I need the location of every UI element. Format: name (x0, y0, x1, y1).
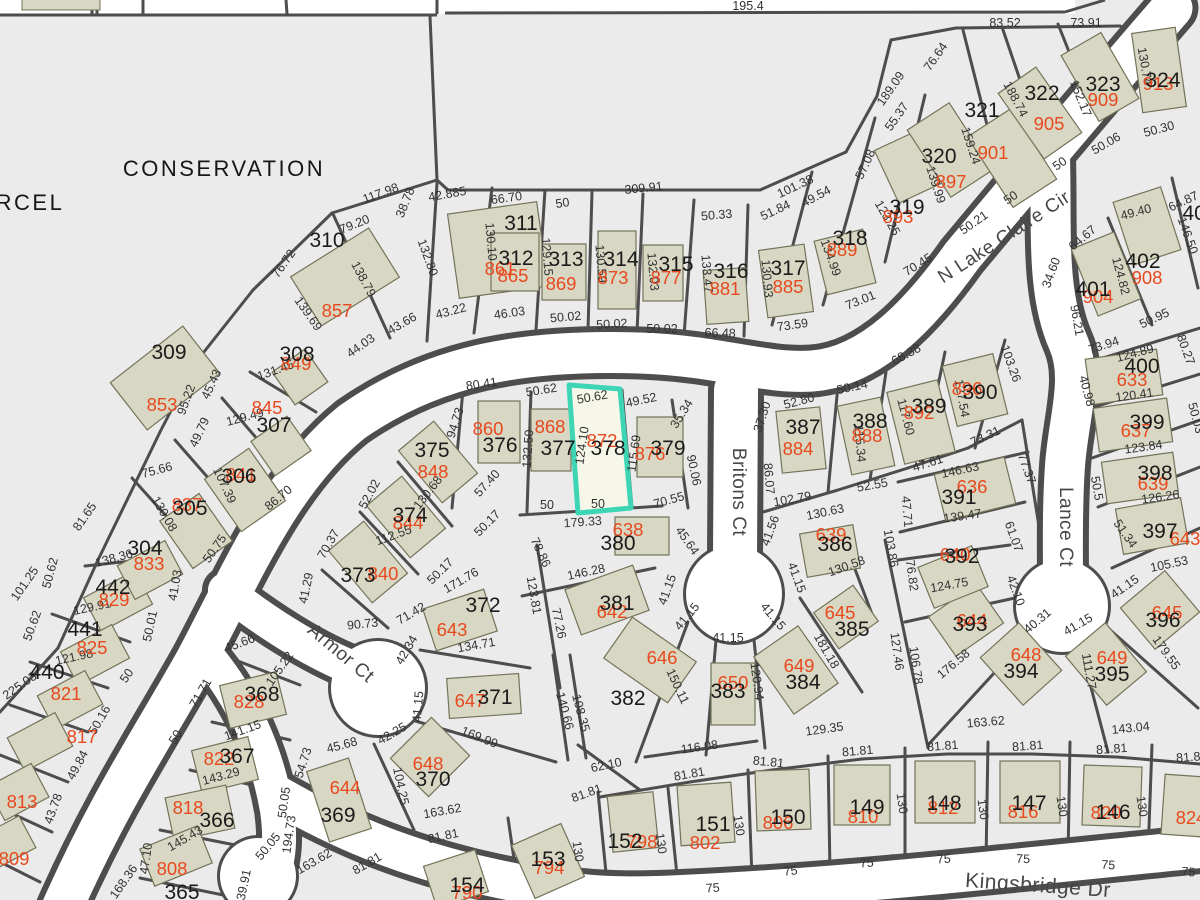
building-footprint (1161, 774, 1200, 838)
parcel-lot-number: 365 (164, 881, 199, 900)
parcel-lot-number: 316 (713, 260, 748, 283)
parcel-lot-number: 400 (1124, 355, 1159, 378)
parcel-map-viewport[interactable]: 195.4117.9879.2076.72138.79139.6938.7842… (0, 0, 1200, 900)
parcel-lot-number: 388 (852, 410, 887, 433)
parcel-lot-number: 154 (449, 874, 484, 897)
parcel-lot-number: 152 (607, 830, 642, 853)
parcel-lot-number: 385 (834, 618, 869, 641)
house-number: 857 (322, 300, 353, 321)
dimension-label: 41.15 (712, 631, 743, 645)
parcel-lot-number: 321 (964, 99, 999, 122)
dimension-label: 130 (731, 814, 748, 837)
parcel-lot-number: 399 (1129, 411, 1164, 434)
parcel-lot-number: 310 (309, 229, 344, 252)
dimension-label: 81.81 (1096, 741, 1128, 757)
dimension-label: 66.48 (704, 325, 736, 340)
parcel-line (286, 0, 287, 14)
parcel-lot-number: 441 (67, 618, 102, 641)
parcel-area-label-clipped: RCEL (0, 190, 64, 215)
parcel-lot-number: 394 (1003, 660, 1038, 683)
dimension-label: 81.81 (927, 738, 959, 754)
dimension-label: 75 (1016, 852, 1030, 866)
parcel-lot-number: 314 (603, 248, 638, 271)
dimension-label: 50.02 (596, 316, 628, 332)
parcel-lot-number: 377 (540, 437, 575, 460)
parcel-lot-number: 372 (465, 594, 500, 617)
parcel-lot-number: 395 (1094, 663, 1129, 686)
dimension-label: 50 (540, 498, 554, 512)
house-number: 821 (51, 683, 82, 704)
parcel-lot-number: 319 (889, 196, 924, 219)
parcel-lot-number: 440 (29, 661, 64, 684)
parcel-lot-number: 146 (1095, 801, 1130, 824)
parcel-lot-number: 403 (1182, 202, 1200, 225)
parcel-lot-number: 323 (1085, 73, 1120, 96)
cul-de-sac (686, 546, 782, 642)
dimension-label: 81.81 (1012, 738, 1044, 754)
street-label-lance-ct: Lance Ct (1055, 487, 1076, 567)
dimension-label: 47.71 (899, 495, 916, 527)
house-number: 643 (437, 619, 468, 640)
dimension-label: 179.33 (563, 514, 602, 531)
parcel-lot-number: 398 (1137, 462, 1172, 485)
dimension-label: 75 (1181, 864, 1196, 879)
dimension-label: 81.81 (1176, 749, 1200, 765)
conservation-area-label: CONSERVATION (123, 156, 325, 181)
house-number: 644 (330, 777, 361, 798)
dimension-label: 50.02 (646, 322, 677, 336)
parcel-lot-number: 396 (1145, 609, 1180, 632)
house-number: 868 (535, 416, 566, 437)
dimension-label: 130 (1054, 795, 1071, 818)
parcel-lot-number: 391 (941, 486, 976, 509)
parcel-lot-number: 368 (244, 683, 279, 706)
street-label-britons-ct: Britons Ct (728, 448, 749, 537)
parcel-lot-number: 153 (530, 848, 565, 871)
dimension-label: 75 (936, 852, 951, 867)
dimension-label: 130 (894, 792, 911, 815)
parcel-lot-number: 383 (710, 680, 745, 703)
dimension-label: 86.07 (761, 462, 778, 494)
parcel-lot-number: 376 (482, 434, 517, 457)
parcel-lot-number: 370 (415, 768, 450, 791)
parcel-lot-number: 386 (817, 533, 852, 556)
parcel-lot-number: 371 (477, 686, 512, 709)
parcel-lot-number: 374 (392, 504, 427, 527)
parcel-lot-number: 389 (911, 395, 946, 418)
house-number: 809 (0, 848, 29, 869)
dimension-label: 130 (975, 798, 992, 821)
parcel-lot-number: 311 (504, 212, 537, 235)
parcel-lot-number: 304 (127, 537, 162, 560)
top-parcel-strip (0, 0, 1105, 15)
parcel-lot-number: 305 (172, 497, 207, 520)
parcel-lot-number: 373 (340, 564, 375, 587)
house-number: 813 (7, 791, 38, 812)
parcel-lot-number: 148 (926, 792, 961, 815)
parcel-lot-number: 380 (600, 532, 635, 555)
parcel-lot-number: 382 (610, 687, 645, 710)
house-number: 869 (546, 273, 577, 294)
parcel-lot-number: 393 (952, 613, 987, 636)
house-number: 817 (67, 726, 98, 747)
parcel-lot-number: 307 (256, 414, 291, 437)
parcel-lot-number: 367 (219, 745, 254, 768)
parcel-lot-number: 401 (1075, 278, 1110, 301)
house-number: 853 (147, 394, 178, 415)
dimension-label: 195.4 (732, 0, 763, 13)
parcel-lot-number: 147 (1011, 792, 1046, 815)
parcel-map-canvas[interactable]: 195.4117.9879.2076.72138.79139.6938.7842… (0, 0, 1200, 900)
parcel-lot-number: 317 (770, 257, 805, 280)
dimension-label: 75 (705, 881, 720, 896)
parcel-lot-number: 387 (785, 416, 820, 439)
parcel-lot-number: 308 (279, 343, 314, 366)
parcel-lot-number: 306 (221, 465, 256, 488)
parcel-lot-number: 320 (921, 145, 956, 168)
house-number: 897 (936, 171, 967, 192)
house-number: 901 (978, 142, 1009, 163)
dimension-label: 130 (570, 840, 587, 863)
house-number: 905 (1034, 113, 1065, 134)
parcel-lot-number: 366 (199, 809, 234, 832)
parcel-lot-number: 384 (785, 671, 820, 694)
parcel-lot-number: 392 (944, 545, 979, 568)
parcel-lot-number: 322 (1024, 82, 1059, 105)
dimension-label: 50.02 (549, 309, 581, 326)
parcel-lot-number: 390 (962, 381, 997, 404)
parcel-lot-number: 315 (658, 253, 693, 276)
parcel-lot-number: 369 (320, 804, 355, 827)
parcel-lot-number: 312 (498, 247, 533, 270)
dimension-label: 81.81 (841, 743, 873, 760)
parcel-lot-number: 375 (414, 439, 449, 462)
parcel-lot-number: 151 (695, 813, 730, 836)
dimension-label: 75 (1101, 858, 1116, 873)
parcel-lot-number: 379 (650, 437, 685, 460)
house-number: 884 (783, 438, 814, 459)
dimension-label: 75 (783, 863, 798, 878)
parcel-lot-number: 442 (95, 576, 130, 599)
parcel-lot-number: 318 (832, 227, 867, 250)
house-number: 824 (1176, 807, 1200, 828)
parcel-lot-number: 397 (1142, 520, 1177, 543)
parcel-lot-number: 149 (849, 796, 884, 819)
parcel-lot-number: 378 (590, 437, 625, 460)
dimension-label: 83.52 (989, 16, 1020, 30)
dimension-label: 73.91 (1070, 16, 1101, 30)
house-number: 848 (418, 461, 449, 482)
parcel-lot-number: 402 (1125, 250, 1160, 273)
parcel-line (828, 756, 830, 872)
dimension-label: 50 (591, 497, 605, 511)
parcel-lot-number: 150 (770, 806, 805, 829)
dimension-label: 130 (1134, 795, 1151, 818)
house-number: 646 (647, 647, 678, 668)
dimension-label: 75 (859, 855, 874, 870)
dimension-label: 50 (555, 195, 571, 211)
dimension-label: 41.15 (410, 690, 427, 722)
parcel-lot-number: 381 (599, 592, 634, 615)
parcel-lot-number: 324 (1145, 69, 1180, 92)
building-footprint (22, 0, 100, 10)
house-number: 808 (157, 858, 188, 879)
dimension-label: 50.33 (700, 207, 732, 224)
parcel-lot-number: 309 (151, 341, 186, 364)
parcel-lot-number: 313 (548, 248, 583, 271)
